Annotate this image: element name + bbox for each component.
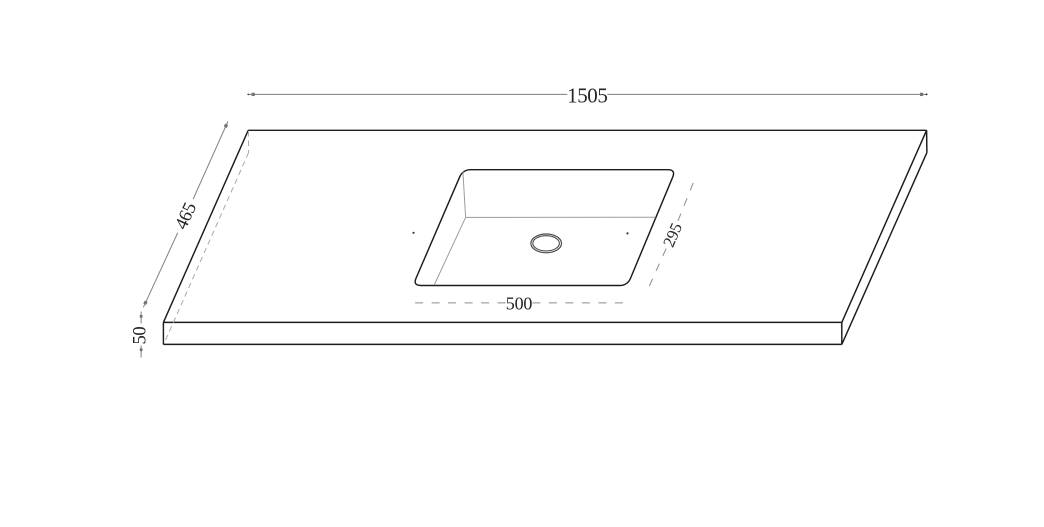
svg-text:1505: 1505 (567, 84, 607, 108)
svg-text:500: 500 (506, 293, 533, 313)
svg-text:50: 50 (130, 327, 151, 345)
